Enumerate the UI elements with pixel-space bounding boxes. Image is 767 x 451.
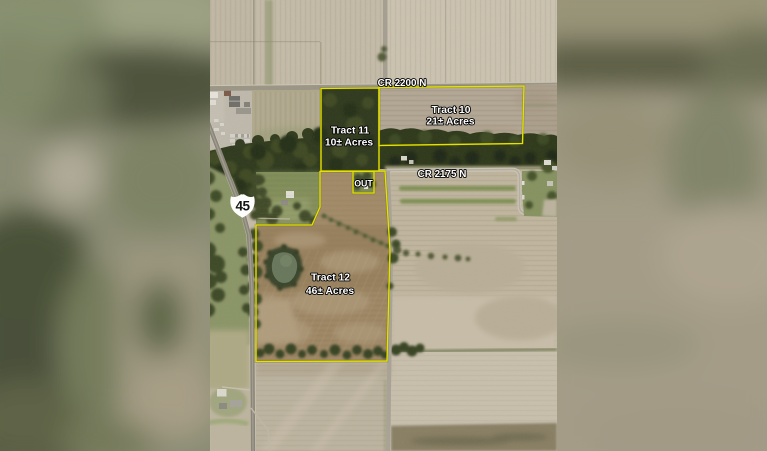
svg-text:45: 45	[235, 199, 250, 214]
svg-text:46± Acres: 46± Acres	[306, 286, 354, 297]
svg-text:Tract 10: Tract 10	[432, 105, 471, 116]
svg-text:CR 2200 N: CR 2200 N	[378, 78, 427, 89]
svg-text:OUT: OUT	[354, 179, 373, 189]
svg-text:CR 2175 N: CR 2175 N	[418, 169, 467, 180]
svg-text:21± Acres: 21± Acres	[426, 117, 474, 128]
svg-text:Tract 12: Tract 12	[311, 273, 350, 284]
svg-text:10± Acres: 10± Acres	[325, 138, 373, 149]
svg-text:Tract 11: Tract 11	[331, 126, 370, 137]
